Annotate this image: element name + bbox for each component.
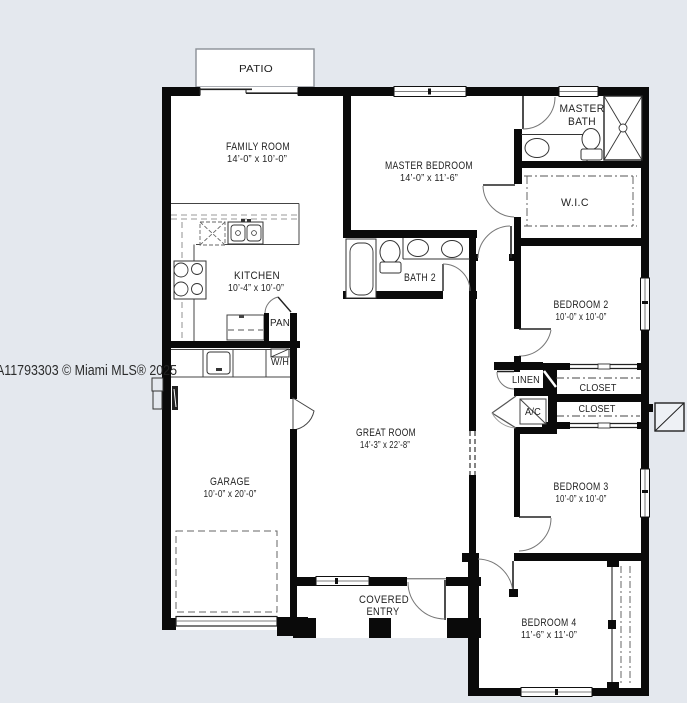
svg-text:PAN: PAN xyxy=(270,318,290,329)
svg-text:BEDROOM 4: BEDROOM 4 xyxy=(522,617,577,629)
svg-text:COVERED: COVERED xyxy=(359,594,409,606)
svg-text:10’-4” x 10’-0”: 10’-4” x 10’-0” xyxy=(228,282,284,294)
svg-text:LINEN: LINEN xyxy=(512,375,540,386)
svg-text:GREAT ROOM: GREAT ROOM xyxy=(356,427,416,439)
svg-text:BATH 2: BATH 2 xyxy=(404,272,436,284)
svg-text:BEDROOM 2: BEDROOM 2 xyxy=(554,299,609,311)
svg-text:KITCHEN: KITCHEN xyxy=(234,270,280,282)
svg-text:A/C: A/C xyxy=(525,407,541,418)
svg-text:BEDROOM 3: BEDROOM 3 xyxy=(554,481,609,493)
svg-text:BATH: BATH xyxy=(568,116,596,128)
svg-text:FAMILY ROOM: FAMILY ROOM xyxy=(226,141,290,153)
svg-text:CLOSET: CLOSET xyxy=(580,383,617,394)
svg-text:W.I.C: W.I.C xyxy=(561,197,589,209)
svg-text:14’-0” x 10’-0”: 14’-0” x 10’-0” xyxy=(227,153,287,165)
svg-text:MASTER BEDROOM: MASTER BEDROOM xyxy=(385,160,473,172)
svg-text:GARAGE: GARAGE xyxy=(210,476,250,488)
svg-text:11’-6” x 11’-0”: 11’-6” x 11’-0” xyxy=(521,629,577,641)
svg-text:10’-0” x 20’-0”: 10’-0” x 20’-0” xyxy=(204,488,257,500)
svg-text:14’-0” x 11’-6”: 14’-0” x 11’-6” xyxy=(400,172,458,184)
svg-text:14’-3” x 22’-8”: 14’-3” x 22’-8” xyxy=(360,439,410,451)
svg-text:10’-0” x 10’-0”: 10’-0” x 10’-0” xyxy=(556,493,607,505)
svg-text:MASTER: MASTER xyxy=(560,103,605,115)
svg-text:ENTRY: ENTRY xyxy=(367,606,400,618)
svg-text:CLOSET: CLOSET xyxy=(579,404,616,415)
svg-text:W/H: W/H xyxy=(271,357,289,368)
svg-text:PATIO: PATIO xyxy=(239,64,273,75)
svg-text:10’-0” x 10’-0”: 10’-0” x 10’-0” xyxy=(556,311,607,323)
svg-text:A11793303 © Miami MLS® 2025: A11793303 © Miami MLS® 2025 xyxy=(0,363,177,379)
